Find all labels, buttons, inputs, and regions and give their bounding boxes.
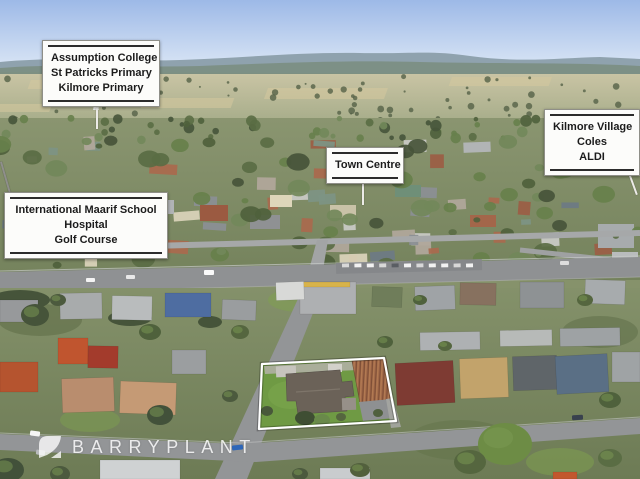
town-tree	[95, 133, 103, 141]
farm-tree	[448, 106, 452, 110]
callout-town-centre: Town Centre	[326, 147, 404, 184]
farm-tree	[445, 98, 449, 102]
town-tree	[444, 203, 457, 213]
callout-line: Assumption College	[51, 51, 151, 66]
town-tree	[424, 200, 439, 212]
aerial-listing-photo: Assumption College St Patricks Primary K…	[0, 0, 640, 479]
farm-tree	[55, 109, 59, 113]
car	[204, 270, 214, 275]
farm-paddock	[264, 88, 388, 99]
town-tree	[369, 218, 383, 229]
parked-car	[342, 263, 349, 267]
town-building	[301, 218, 313, 232]
town-tree	[323, 226, 338, 237]
farm-tree	[615, 102, 621, 108]
tree-highlight	[483, 427, 513, 448]
town-tree	[138, 151, 161, 168]
car	[86, 278, 95, 282]
town-building	[85, 257, 97, 266]
town-tree	[242, 162, 257, 173]
town-tree	[287, 153, 310, 170]
farm-tree	[337, 111, 341, 115]
tree-highlight	[24, 306, 39, 317]
town-building	[257, 177, 276, 190]
tree-highlight	[224, 391, 233, 397]
town-building	[463, 142, 491, 153]
tree-highlight	[601, 394, 613, 402]
farm-tree	[409, 108, 414, 113]
town-tree	[183, 121, 190, 128]
house-roof	[512, 355, 557, 391]
farm-tree	[233, 87, 238, 92]
town-tree	[500, 188, 518, 201]
callout-line: Hospital	[13, 218, 159, 233]
town-tree	[171, 139, 189, 152]
town-tree	[474, 122, 480, 128]
town-building	[518, 201, 531, 215]
farm-tree	[388, 113, 392, 117]
car	[560, 261, 569, 265]
town-tree	[137, 136, 146, 145]
tree-highlight	[579, 295, 588, 301]
tree-highlight	[150, 407, 164, 417]
town-tree	[20, 115, 28, 123]
town-building	[428, 248, 439, 254]
farm-tree	[377, 106, 384, 113]
farm-tree	[227, 81, 230, 84]
callout-line: Kilmore Village	[553, 120, 631, 135]
town-tree	[216, 248, 226, 255]
house-roof	[60, 293, 102, 320]
callout-line: Kilmore Primary	[51, 81, 151, 96]
tree-highlight	[141, 326, 153, 334]
parked-car	[441, 263, 448, 267]
house-roof	[560, 327, 620, 346]
farm-paddock	[449, 77, 552, 86]
garden-tree	[295, 411, 315, 425]
house-roof	[395, 361, 455, 406]
town-building	[200, 205, 228, 221]
town-tree	[399, 134, 406, 141]
parked-car	[392, 263, 399, 267]
town-tree	[109, 126, 115, 132]
barry-plant-logo-icon	[36, 433, 64, 461]
town-building	[420, 187, 437, 198]
farm-tree	[4, 76, 11, 83]
parked-car	[466, 263, 473, 267]
farm-tree	[305, 83, 307, 85]
town-tree	[168, 117, 173, 122]
farm-tree	[508, 114, 511, 117]
town-tree	[260, 137, 274, 148]
town-tree	[474, 117, 479, 122]
town-tree	[96, 144, 103, 149]
house-roof	[165, 293, 211, 317]
town-tree	[319, 128, 329, 138]
parked-car	[416, 263, 423, 267]
town-tree	[366, 119, 374, 127]
car	[572, 415, 583, 421]
farm-tree	[351, 94, 355, 98]
farm-tree	[361, 81, 365, 85]
town-tree	[113, 114, 123, 124]
town-tree	[536, 207, 553, 219]
town-building	[521, 219, 531, 225]
house-roof	[112, 296, 152, 321]
house-roof	[372, 286, 403, 307]
farm-tree	[488, 98, 491, 101]
town-building	[270, 195, 292, 207]
town-tree	[517, 127, 528, 138]
callout-line: Town Centre	[335, 158, 395, 173]
town-tree	[104, 136, 117, 146]
town-tree	[203, 138, 216, 148]
tree-highlight	[457, 452, 475, 464]
farm-tree	[526, 103, 532, 109]
town-building	[561, 202, 578, 208]
town-building	[307, 189, 325, 202]
tree-highlight	[52, 295, 61, 301]
town-tree	[532, 115, 541, 124]
house-roof	[500, 330, 552, 347]
town-tree	[499, 135, 517, 149]
farm-tree	[296, 85, 301, 90]
town-tree	[198, 117, 205, 124]
house-roof	[276, 282, 305, 301]
town-tree	[249, 120, 260, 131]
farm-tree	[358, 87, 363, 92]
callout-schools-text: Assumption College St Patricks Primary K…	[48, 45, 154, 102]
hedge	[198, 316, 222, 328]
town-tree	[288, 180, 310, 197]
farm-tree	[102, 106, 106, 110]
house-roof	[302, 282, 350, 287]
town-tree	[337, 116, 342, 121]
car	[126, 275, 135, 279]
parked-car	[367, 263, 374, 267]
callout-schools: Assumption College St Patricks Primary K…	[42, 40, 160, 107]
garden-tree	[373, 409, 383, 417]
tree-highlight	[600, 451, 613, 460]
town-building	[48, 148, 57, 156]
town-tree	[380, 122, 388, 130]
farm-tree	[404, 90, 406, 92]
farm-tree	[132, 110, 138, 116]
farm-tree	[311, 84, 316, 89]
farm-tree	[328, 88, 333, 93]
parked-car	[429, 263, 436, 267]
town-tree	[430, 120, 442, 132]
parked-car	[379, 263, 386, 267]
town-tree	[448, 229, 456, 235]
house-roof	[460, 283, 496, 306]
tree-highlight	[233, 326, 243, 333]
town-tree	[538, 190, 555, 202]
parked-car	[404, 263, 411, 267]
town-tree	[232, 178, 244, 187]
house-roof	[459, 357, 508, 399]
town-tree	[484, 202, 496, 211]
tree-highlight	[414, 296, 422, 301]
farm-tree	[401, 74, 406, 79]
tree-highlight	[294, 469, 303, 475]
town-tree	[356, 134, 363, 141]
garden-tree	[336, 413, 346, 421]
watermark-brand-text: BARRYPLANT	[72, 437, 257, 458]
farm-tree	[163, 76, 168, 81]
farm-tree	[613, 83, 620, 90]
farm-tree	[352, 102, 357, 107]
town-tree	[154, 129, 160, 135]
farm-tree	[484, 76, 490, 82]
callout-town-centre-text: Town Centre	[332, 152, 398, 179]
farm-tree	[583, 89, 586, 92]
porch-roof	[342, 398, 356, 410]
agency-watermark: BARRYPLANT	[36, 433, 257, 461]
farm-tree	[495, 78, 498, 81]
farm-tree	[467, 91, 471, 95]
callout-shops-text: Kilmore Village Coles ALDI	[550, 114, 634, 171]
tree-highlight	[379, 337, 388, 343]
town-tree	[552, 220, 567, 231]
town-tree	[535, 164, 544, 171]
town-tree	[513, 119, 520, 126]
parked-car	[354, 263, 361, 267]
farm-tree	[466, 86, 469, 89]
town-tree	[53, 262, 62, 269]
parked-car	[454, 263, 461, 267]
farm-tree	[512, 102, 518, 108]
town-tree	[193, 192, 210, 205]
house-roof	[555, 354, 609, 395]
town-building	[430, 154, 444, 168]
farm-tree	[528, 76, 531, 79]
town-tree	[23, 150, 42, 164]
garden-tree	[261, 406, 273, 416]
house-roof	[61, 377, 114, 413]
town-tree	[469, 133, 477, 141]
town-tree	[520, 115, 532, 127]
town-tree	[342, 213, 358, 225]
town-tree	[592, 186, 615, 203]
town-tree	[473, 217, 480, 222]
farm-tree	[468, 103, 475, 110]
house-roof	[612, 352, 640, 382]
farm-tree	[504, 106, 510, 112]
town-tree	[45, 160, 67, 176]
tree-highlight	[439, 342, 447, 347]
callout-line: International Maarif School	[13, 203, 159, 218]
town-tree	[147, 122, 153, 128]
house-roof	[222, 299, 257, 320]
house-roof	[553, 472, 577, 479]
farm-tree	[560, 83, 563, 86]
farm-tree	[199, 86, 201, 88]
farm-tree	[387, 107, 394, 114]
town-tree	[389, 135, 394, 140]
town-tree	[212, 128, 219, 135]
town-tree	[68, 115, 75, 122]
town-tree	[101, 118, 109, 126]
house-roof	[172, 350, 206, 374]
town-tree	[473, 172, 485, 181]
farm-tree	[348, 107, 355, 114]
farm-tree	[528, 91, 535, 98]
farm-tree	[593, 99, 598, 104]
town-tree	[8, 115, 17, 124]
callout-line: St Patricks Primary	[51, 66, 151, 81]
farm-tree	[227, 95, 229, 97]
town-tree	[82, 138, 92, 146]
farm-tree	[355, 112, 359, 116]
town-tree	[242, 198, 249, 203]
callout-line: Coles	[553, 135, 631, 150]
callout-amenities-text: International Maarif School Hospital Gol…	[10, 197, 162, 254]
house-roof	[58, 338, 88, 364]
farm-tree	[315, 93, 320, 98]
tree-highlight	[52, 468, 63, 476]
house-roof	[100, 460, 180, 479]
town-tree	[327, 210, 343, 222]
town-tree	[331, 134, 336, 139]
house-roof	[88, 346, 118, 369]
farm-tree	[341, 86, 347, 92]
farm-tree	[186, 78, 191, 83]
callout-line: Golf Course	[13, 233, 159, 248]
town-building	[203, 222, 227, 231]
town-tree	[255, 208, 272, 220]
town-tree	[522, 179, 535, 189]
callout-shops: Kilmore Village Coles ALDI	[544, 109, 640, 176]
tree-highlight	[352, 464, 363, 471]
town-tree	[450, 133, 460, 143]
farm-tree	[272, 89, 278, 95]
town-tree	[101, 129, 108, 136]
house-roof	[520, 282, 564, 308]
schools-pointer-line	[96, 108, 98, 129]
callout-amenities: International Maarif School Hospital Gol…	[4, 192, 168, 259]
callout-line: ALDI	[553, 150, 631, 165]
house-roof	[0, 362, 38, 392]
